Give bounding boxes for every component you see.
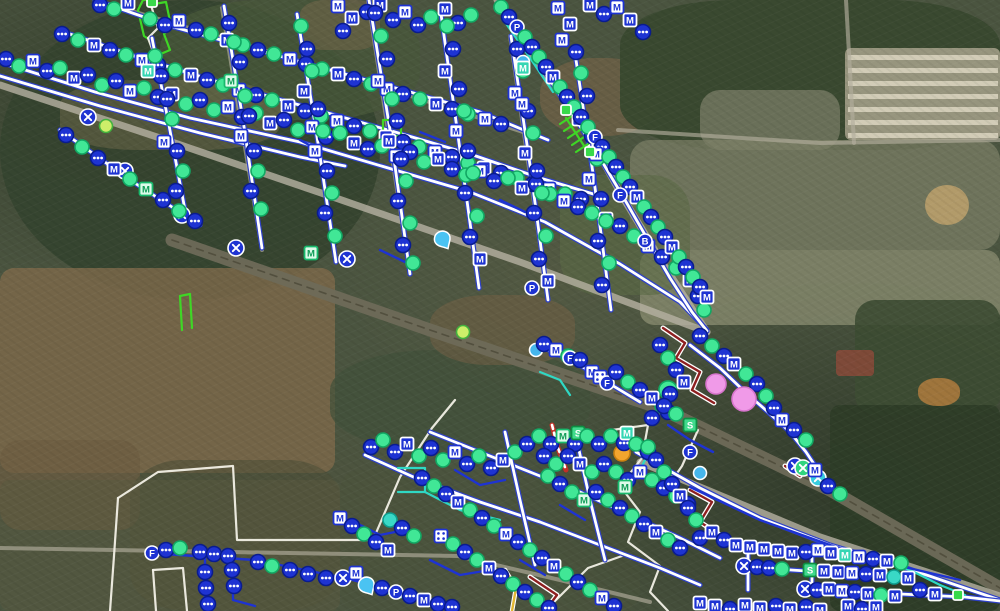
green-node-marker[interactable]	[539, 229, 553, 243]
service-point-marker[interactable]	[458, 186, 473, 201]
service-point-marker[interactable]	[446, 42, 461, 57]
service-point-marker[interactable]	[913, 583, 928, 598]
service-point-marker[interactable]	[866, 552, 881, 567]
green-node-marker[interactable]	[464, 8, 478, 22]
valve-x-marker[interactable]	[339, 251, 355, 267]
green-node-marker[interactable]	[799, 433, 813, 447]
service-point-marker[interactable]	[40, 64, 55, 79]
meter-square-marker-white[interactable]: M	[776, 414, 789, 427]
green-node-marker[interactable]	[363, 124, 377, 138]
service-point-marker[interactable]	[319, 571, 334, 586]
letter-circle-marker[interactable]: P	[389, 585, 403, 599]
meter-square-marker-blue[interactable]: M	[650, 526, 663, 539]
meter-square-marker-blue[interactable]: M	[430, 98, 443, 111]
service-point-marker[interactable]	[368, 6, 383, 21]
service-point-marker[interactable]	[81, 68, 96, 83]
meter-square-marker-blue[interactable]: M	[772, 545, 785, 558]
green-node-marker[interactable]	[207, 103, 221, 117]
meter-square-marker-blue[interactable]: M	[382, 544, 395, 557]
green-node-marker[interactable]	[602, 256, 616, 270]
service-point-marker[interactable]	[193, 93, 208, 108]
green-node-marker[interactable]	[267, 47, 281, 61]
green-node-marker[interactable]	[176, 164, 190, 178]
meter-square-marker-blue[interactable]: M	[758, 543, 771, 556]
service-point-marker[interactable]	[487, 174, 502, 189]
meter-square-marker-blue[interactable]: M	[418, 594, 431, 607]
service-point-marker[interactable]	[527, 206, 542, 221]
meter-square-marker-blue[interactable]: M	[902, 572, 915, 585]
meter-square-marker-blue[interactable]: M	[564, 18, 577, 31]
service-point-marker[interactable]	[723, 602, 738, 611]
green-node-marker[interactable]	[173, 541, 187, 555]
green-node-marker[interactable]	[254, 202, 268, 216]
service-point-marker[interactable]	[347, 119, 362, 134]
service-point-marker[interactable]	[225, 563, 240, 578]
meter-square-marker-blue[interactable]: M	[439, 65, 452, 78]
meter-square-marker-blue[interactable]: M	[88, 39, 101, 52]
service-point-marker[interactable]	[198, 565, 213, 580]
meter-square-marker-white[interactable]: M	[399, 6, 412, 19]
service-point-marker[interactable]	[311, 102, 326, 117]
meter-square-marker-blue[interactable]: M	[694, 597, 707, 610]
service-point-marker[interactable]	[787, 423, 802, 438]
meter-square-marker-white[interactable]: M	[558, 195, 571, 208]
meter-square-marker-white[interactable]: M	[350, 567, 363, 580]
service-point-marker[interactable]	[169, 184, 184, 199]
meter-square-marker-blue[interactable]: M	[519, 147, 532, 160]
green-node-marker[interactable]	[333, 126, 347, 140]
service-point-marker[interactable]	[170, 144, 185, 159]
green-node-marker[interactable]	[172, 204, 186, 218]
service-point-marker[interactable]	[160, 92, 175, 107]
service-point-marker[interactable]	[336, 24, 351, 39]
meter-square-marker-white[interactable]: M	[27, 55, 40, 68]
green-node-marker[interactable]	[599, 214, 613, 228]
service-point-marker[interactable]	[277, 113, 292, 128]
meter-square-marker-white[interactable]: M	[332, 0, 345, 13]
meter-square-marker-blue[interactable]: M	[823, 583, 836, 596]
lime-circle-marker[interactable]	[457, 326, 470, 339]
service-point-marker[interactable]	[318, 206, 333, 221]
green-node-marker[interactable]	[227, 35, 241, 49]
service-point-marker[interactable]	[452, 82, 467, 97]
green-node-marker[interactable]	[179, 97, 193, 111]
meter-square-marker-blue[interactable]: M	[678, 376, 691, 389]
green-node-marker[interactable]	[406, 256, 420, 270]
service-point-marker[interactable]	[573, 353, 588, 368]
service-point-marker[interactable]	[594, 192, 609, 207]
service-point-marker[interactable]	[580, 89, 595, 104]
parcel-boundary-line[interactable]	[118, 400, 455, 540]
service-point-marker[interactable]	[530, 164, 545, 179]
green-node-marker[interactable]	[457, 104, 471, 118]
green-node-marker[interactable]	[833, 487, 847, 501]
service-point-marker[interactable]	[645, 411, 660, 426]
meter-square-marker-blue[interactable]: M	[728, 358, 741, 371]
service-point-marker[interactable]	[222, 16, 237, 31]
svg-text:M: M	[434, 154, 442, 165]
meter-square-marker-blue[interactable]: M	[874, 569, 887, 582]
service-point-marker[interactable]	[227, 579, 242, 594]
meter-square-marker-white[interactable]: M	[634, 466, 647, 479]
service-point-marker[interactable]	[242, 109, 257, 124]
green-node-marker[interactable]	[12, 59, 26, 73]
green-node-marker[interactable]	[472, 449, 486, 463]
green-node-marker[interactable]	[894, 556, 908, 570]
service-point-marker[interactable]	[247, 144, 262, 159]
service-point-marker[interactable]	[300, 42, 315, 57]
meter-square-marker-blue[interactable]: M	[108, 163, 121, 176]
meter-square-marker-blue[interactable]: M	[862, 588, 875, 601]
green-node-marker[interactable]	[328, 229, 342, 243]
service-point-marker[interactable]	[156, 193, 171, 208]
svg-text:M: M	[580, 495, 588, 506]
meter-square-marker-teal[interactable]: M	[621, 427, 634, 440]
green-node-marker[interactable]	[71, 33, 85, 47]
meter-square-marker-blue[interactable]: M	[832, 566, 845, 579]
letter-circle-marker[interactable]: F	[683, 445, 697, 459]
service-point-marker[interactable]	[607, 599, 622, 611]
service-point-marker[interactable]	[188, 214, 203, 229]
meter-square-marker-blue[interactable]: M	[624, 14, 637, 27]
service-point-marker[interactable]	[693, 329, 708, 344]
meter-square-marker-white[interactable]: M	[611, 1, 624, 14]
valve-x-marker[interactable]	[80, 109, 96, 125]
meter-square-marker-teal[interactable]: M	[839, 549, 852, 562]
green-node-marker[interactable]	[604, 429, 618, 443]
green-node-marker[interactable]	[501, 171, 515, 185]
meter-square-marker-green[interactable]: M	[619, 481, 632, 494]
green-node-marker[interactable]	[535, 186, 549, 200]
pink-circle-marker[interactable]	[706, 374, 726, 394]
meter-square-marker-white[interactable]: M	[173, 15, 186, 28]
meter-square-marker-white[interactable]: M	[516, 98, 529, 111]
green-node-marker[interactable]	[376, 433, 390, 447]
service-point-marker[interactable]	[424, 441, 439, 456]
green-node-marker[interactable]	[251, 164, 265, 178]
service-point-marker[interactable]	[411, 18, 426, 33]
meter-square-marker-white[interactable]: M	[583, 173, 596, 186]
meter-square-marker-blue[interactable]: M	[739, 599, 752, 611]
lateral-line-green[interactable]	[190, 294, 192, 328]
meter-square-marker-green[interactable]: M	[225, 75, 238, 88]
meter-square-marker-blue[interactable]: M	[264, 117, 277, 130]
green-node-marker[interactable]	[107, 2, 121, 16]
meter-square-marker-white[interactable]: M	[124, 85, 137, 98]
green-node-marker[interactable]	[697, 303, 711, 317]
service-point-marker[interactable]	[609, 365, 624, 380]
lateral-line-green[interactable]	[180, 294, 190, 296]
service-point-marker[interactable]	[380, 52, 395, 67]
meter-square-marker-blue[interactable]: M	[122, 0, 135, 10]
meter-square-marker-blue[interactable]: M	[401, 438, 414, 451]
service-point-marker[interactable]	[189, 23, 204, 38]
service-point-marker[interactable]	[347, 72, 362, 87]
meter-square-marker-white[interactable]: M	[812, 544, 825, 557]
meter-square-marker-blue[interactable]: M	[784, 603, 797, 611]
service-point-marker[interactable]	[403, 589, 418, 604]
green-node-marker[interactable]	[75, 140, 89, 154]
meter-square-marker-white[interactable]: M	[449, 446, 462, 459]
letter-circle-marker[interactable]: P	[525, 281, 539, 295]
service-point-marker[interactable]	[221, 549, 236, 564]
meter-square-marker-blue[interactable]: M	[929, 588, 942, 601]
meter-square-marker-blue[interactable]: M	[432, 153, 445, 166]
meter-square-marker-white[interactable]: M	[309, 145, 322, 158]
meter-square-marker-blue[interactable]: M	[818, 565, 831, 578]
green-square-marker[interactable]	[561, 105, 571, 115]
service-point-marker[interactable]	[390, 114, 405, 129]
meter-square-marker-green[interactable]: M	[140, 183, 153, 196]
service-point-marker[interactable]	[375, 581, 390, 596]
meter-square-marker-blue[interactable]: M	[298, 85, 311, 98]
meter-square-marker-white[interactable]: M	[479, 113, 492, 126]
green-node-marker[interactable]	[574, 66, 588, 80]
green-node-marker[interactable]	[305, 64, 319, 78]
letter-circle-marker[interactable]: B	[638, 234, 652, 248]
service-point-marker[interactable]	[396, 238, 411, 253]
green-node-marker[interactable]	[294, 19, 308, 33]
service-point-marker[interactable]	[283, 563, 298, 578]
meter-square-marker-blue[interactable]: M	[842, 600, 855, 611]
green-node-marker[interactable]	[466, 166, 480, 180]
service-point-marker[interactable]	[193, 545, 208, 560]
service-point-marker[interactable]	[461, 144, 476, 159]
green-node-marker[interactable]	[119, 48, 133, 62]
meter-square-marker-blue[interactable]: M	[701, 291, 714, 304]
green-node-marker[interactable]	[470, 209, 484, 223]
meter-square-marker-white[interactable]: M	[235, 130, 248, 143]
meter-square-marker-white[interactable]: M	[853, 551, 866, 564]
meter-square-marker-blue[interactable]: M	[754, 602, 767, 611]
service-point-marker[interactable]	[301, 567, 316, 582]
green-node-marker[interactable]	[316, 124, 330, 138]
service-point-marker[interactable]	[848, 585, 863, 600]
meter-square-marker-blue[interactable]: M	[825, 547, 838, 560]
service-point-marker[interactable]	[233, 55, 248, 70]
meter-square-marker-white[interactable]: M	[809, 464, 822, 477]
service-point-marker[interactable]	[251, 555, 266, 570]
meter-square-marker-blue[interactable]: M	[348, 137, 361, 150]
meter-square-marker-blue[interactable]: M	[439, 3, 452, 16]
svg-text:M: M	[811, 465, 819, 476]
service-point-marker[interactable]	[59, 128, 74, 143]
service-point-marker[interactable]	[636, 25, 651, 40]
service-point-marker[interactable]	[109, 74, 124, 89]
lime-circle-marker[interactable]	[100, 120, 113, 133]
green-square-marker[interactable]	[953, 590, 963, 600]
meter-square-marker-blue[interactable]: M	[814, 604, 827, 611]
service-point-marker[interactable]	[93, 0, 108, 13]
parcel-boundary-line[interactable]	[153, 568, 187, 611]
svg-text:M: M	[403, 439, 411, 450]
meter-square-marker-teal[interactable]: M	[142, 65, 155, 78]
green-node-marker[interactable]	[385, 92, 399, 106]
parcel-boundary-line[interactable]	[110, 498, 118, 611]
meter-square-marker-blue[interactable]: M	[584, 0, 597, 12]
service-point-marker[interactable]	[431, 597, 446, 611]
meter-square-marker-blue[interactable]: M	[730, 539, 743, 552]
svg-text:F: F	[604, 378, 610, 389]
s-square-marker[interactable]: S	[684, 419, 697, 432]
s-square-marker[interactable]: S	[804, 564, 817, 577]
letter-circle-marker[interactable]: F	[613, 188, 627, 202]
meter-square-marker-blue[interactable]: M	[516, 182, 529, 195]
service-point-marker[interactable]	[799, 600, 814, 611]
green-node-marker[interactable]	[123, 172, 137, 186]
service-point-marker[interactable]	[391, 194, 406, 209]
green-node-marker[interactable]	[374, 29, 388, 43]
service-point-marker[interactable]	[154, 69, 169, 84]
meter-square-marker-blue[interactable]: M	[474, 253, 487, 266]
meter-square-marker-blue[interactable]: M	[383, 135, 396, 148]
meter-square-marker-blue[interactable]: M	[282, 100, 295, 113]
meter-square-marker-blue[interactable]: M	[548, 560, 561, 573]
meter-square-marker-white[interactable]: M	[284, 53, 297, 66]
service-point-marker[interactable]	[445, 600, 460, 611]
meter-square-marker-white[interactable]: M	[556, 34, 569, 47]
green-node-marker[interactable]	[585, 206, 599, 220]
service-point-marker[interactable]	[859, 567, 874, 582]
dice-square-marker[interactable]	[435, 530, 448, 543]
green-node-marker[interactable]	[424, 10, 438, 24]
green-node-marker[interactable]	[705, 339, 719, 353]
service-point-marker[interactable]	[159, 543, 174, 558]
meter-square-marker-blue[interactable]: M	[452, 496, 465, 509]
meter-square-marker-blue[interactable]: M	[744, 541, 757, 554]
service-point-marker[interactable]	[597, 7, 612, 22]
meter-square-marker-white[interactable]: M	[552, 2, 565, 15]
service-point-marker[interactable]	[207, 547, 222, 562]
road-line	[618, 130, 1000, 143]
green-node-marker[interactable]	[403, 216, 417, 230]
meter-square-marker-blue[interactable]: M	[332, 68, 345, 81]
green-node-marker[interactable]	[399, 174, 413, 188]
meter-square-marker-teal[interactable]: M	[517, 62, 530, 75]
service-point-marker[interactable]	[571, 200, 586, 215]
service-point-marker[interactable]	[361, 142, 376, 157]
cyan-node-marker[interactable]	[694, 467, 707, 480]
satellite-map-canvas[interactable]: MMMMMMMMMMMMMMMMMMMMMMMMMMMMMMMMMMMMMMMM…	[0, 0, 1000, 611]
meter-square-marker-blue[interactable]: M	[346, 12, 359, 25]
service-point-marker[interactable]	[463, 230, 478, 245]
service-point-marker[interactable]	[200, 73, 215, 88]
meter-square-marker-white[interactable]: M	[450, 125, 463, 138]
green-node-marker[interactable]	[689, 513, 703, 527]
service-point-marker[interactable]	[394, 152, 409, 167]
green-node-marker[interactable]	[53, 61, 67, 75]
meter-square-marker-white[interactable]: M	[222, 101, 235, 114]
svg-text:M: M	[786, 604, 794, 611]
service-point-marker[interactable]	[591, 234, 606, 249]
green-node-marker[interactable]	[325, 186, 339, 200]
service-point-marker[interactable]	[201, 597, 216, 611]
meter-square-marker-blue[interactable]: M	[68, 72, 81, 85]
meter-square-marker-blue[interactable]: M	[786, 547, 799, 560]
lateral-line-green[interactable]	[180, 296, 182, 330]
service-point-marker[interactable]	[251, 43, 266, 58]
green-node-marker[interactable]	[238, 89, 252, 103]
service-point-marker[interactable]	[199, 581, 214, 596]
green-node-marker[interactable]	[137, 81, 151, 95]
service-point-marker[interactable]	[653, 338, 668, 353]
green-node-marker[interactable]	[291, 123, 305, 137]
meter-square-marker-white[interactable]: M	[372, 75, 385, 88]
svg-text:M: M	[420, 595, 428, 606]
service-point-marker[interactable]	[103, 43, 118, 58]
green-node-marker[interactable]	[95, 78, 109, 92]
pink-circle-marker[interactable]	[732, 387, 756, 411]
meter-square-marker-blue[interactable]: M	[497, 454, 510, 467]
meter-square-marker-blue[interactable]: M	[889, 590, 902, 603]
service-point-marker[interactable]	[673, 541, 688, 556]
service-point-marker[interactable]	[855, 602, 870, 611]
meter-square-marker-blue[interactable]: M	[870, 601, 883, 611]
green-node-marker[interactable]	[143, 12, 157, 26]
green-node-marker[interactable]	[669, 407, 683, 421]
meter-square-marker-white[interactable]: M	[836, 585, 849, 598]
service-point-marker[interactable]	[91, 151, 106, 166]
service-point-marker[interactable]	[762, 561, 777, 576]
svg-text:M: M	[142, 184, 150, 195]
service-point-marker[interactable]	[569, 45, 584, 60]
meter-square-marker-blue[interactable]: M	[542, 275, 555, 288]
parcel-boundary-line[interactable]	[153, 570, 156, 611]
service-point-marker[interactable]	[613, 219, 628, 234]
meter-square-marker-white[interactable]: M	[158, 136, 171, 149]
service-point-marker[interactable]	[55, 27, 70, 42]
service-point-marker[interactable]	[494, 117, 509, 132]
svg-text:M: M	[855, 552, 863, 563]
green-node-marker[interactable]	[413, 92, 427, 106]
green-node-marker[interactable]	[265, 93, 279, 107]
service-point-marker[interactable]	[532, 252, 547, 267]
green-node-marker[interactable]	[407, 529, 421, 543]
green-square-marker[interactable]	[147, 0, 157, 7]
green-node-marker[interactable]	[526, 126, 540, 140]
green-node-marker[interactable]	[440, 19, 454, 33]
green-node-marker[interactable]	[265, 559, 279, 573]
meter-square-marker-white[interactable]: M	[846, 567, 859, 580]
green-node-marker[interactable]	[775, 562, 789, 576]
meter-square-marker-blue[interactable]: M	[709, 600, 722, 611]
service-point-marker[interactable]	[769, 599, 784, 611]
service-point-marker[interactable]	[595, 278, 610, 293]
green-node-marker[interactable]	[417, 155, 431, 169]
svg-text:M: M	[160, 137, 168, 148]
meter-square-marker-blue[interactable]: M	[881, 555, 894, 568]
letter-circle-marker[interactable]: F	[145, 546, 159, 560]
meter-square-marker-blue[interactable]: M	[574, 458, 587, 471]
svg-text:M: M	[696, 598, 704, 609]
service-point-marker[interactable]	[445, 162, 460, 177]
service-point-marker[interactable]	[244, 184, 259, 199]
service-point-marker[interactable]	[320, 164, 335, 179]
service-point-marker[interactable]	[158, 18, 173, 33]
green-node-marker[interactable]	[165, 112, 179, 126]
svg-text:M: M	[756, 603, 764, 611]
green-square-marker[interactable]	[585, 147, 595, 157]
green-node-marker[interactable]	[204, 27, 218, 41]
meter-square-marker-blue[interactable]: M	[185, 69, 198, 82]
green-node-marker[interactable]	[168, 63, 182, 77]
valve-x-marker[interactable]	[228, 240, 244, 256]
service-point-marker[interactable]	[542, 601, 557, 611]
green-node-marker[interactable]	[148, 49, 162, 63]
green-node-marker[interactable]	[641, 440, 655, 454]
meter-square-marker-green[interactable]: M	[305, 247, 318, 260]
teal-node-marker[interactable]	[887, 570, 901, 584]
